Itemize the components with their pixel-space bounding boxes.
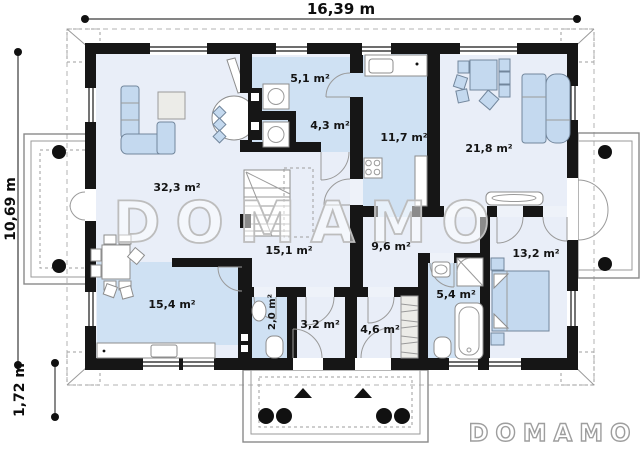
- shower: [457, 258, 483, 286]
- room-label-boiler-room: 4,3 m²: [310, 119, 350, 132]
- column: [52, 259, 66, 273]
- window: [449, 358, 478, 370]
- room-label-vestibule: 3,2 m²: [300, 318, 340, 331]
- window: [143, 358, 179, 370]
- floor-plan: DOMAMO 32,3 m² 5,1 m² 4,3 m² 11,7 m² 21,…: [0, 0, 640, 449]
- window: [567, 291, 578, 326]
- dimension-width-label: 16,39 m: [307, 0, 375, 18]
- brand-logo: DOMAMO: [468, 419, 637, 447]
- bathtub: [455, 303, 483, 359]
- kitchen-counter: [365, 55, 427, 76]
- room-label-living-room: 32,3 m²: [153, 181, 200, 194]
- terrace-door: [70, 189, 96, 221]
- room-label-wardrobe: 4,6 m²: [360, 323, 400, 336]
- window: [183, 358, 214, 370]
- dimension-porch: 1,72 m: [12, 359, 59, 421]
- dimension-height: 10,69 m: [3, 48, 22, 369]
- bathroom-toilet: [434, 337, 451, 358]
- entrance-arrow-icon: [354, 388, 372, 398]
- room-label-hall: 15,1 m²: [265, 244, 312, 257]
- room-label-lounge: 21,8 m²: [465, 142, 512, 155]
- wardrobe-closet: [401, 296, 418, 358]
- right-terrace: [578, 133, 639, 278]
- column: [598, 257, 612, 271]
- decor-plants-icon: [213, 106, 226, 143]
- column: [394, 408, 410, 424]
- room-label-bathroom: 5,4 m²: [436, 288, 476, 301]
- column: [258, 408, 274, 424]
- floor-plan-drawing: DOMAMO 32,3 m² 5,1 m² 4,3 m² 11,7 m² 21,…: [0, 0, 640, 449]
- nightstand: [491, 258, 504, 270]
- left-terrace: [24, 134, 90, 284]
- entrance-porch: [243, 370, 428, 442]
- window: [85, 88, 96, 122]
- room-label-wc: 2,0 m²: [267, 294, 278, 330]
- lounge-sofa: [522, 74, 570, 143]
- window: [460, 43, 517, 55]
- dimension-height-label: 10,69 m: [3, 177, 19, 241]
- dining-counter: [97, 343, 215, 358]
- stove: [364, 158, 382, 178]
- nightstand: [491, 333, 504, 345]
- window: [276, 43, 307, 55]
- bathroom-sink: [432, 262, 450, 277]
- entrance-arrow-icon: [294, 388, 312, 398]
- column: [276, 408, 292, 424]
- window: [85, 292, 96, 326]
- dimension-width: 16,39 m: [81, 0, 581, 23]
- window: [362, 43, 391, 55]
- coffee-table: [158, 92, 185, 119]
- column: [52, 145, 66, 159]
- room-label-bedroom: 13,2 m²: [512, 247, 559, 260]
- window: [150, 43, 207, 55]
- room-label-dining-room: 15,4 m²: [148, 298, 195, 311]
- bed: [492, 271, 549, 331]
- dimension-porch-label: 1,72 m: [12, 363, 28, 417]
- window: [489, 358, 521, 370]
- room-label-kitchen: 11,7 m²: [380, 131, 427, 144]
- wc-sink: [252, 301, 266, 321]
- room-label-corridor: 9,6 m²: [371, 240, 411, 253]
- room-label-utility-room: 5,1 m²: [290, 72, 330, 85]
- column: [598, 145, 612, 159]
- terrace-door: [567, 178, 608, 240]
- column: [376, 408, 392, 424]
- wc-toilet: [266, 336, 283, 358]
